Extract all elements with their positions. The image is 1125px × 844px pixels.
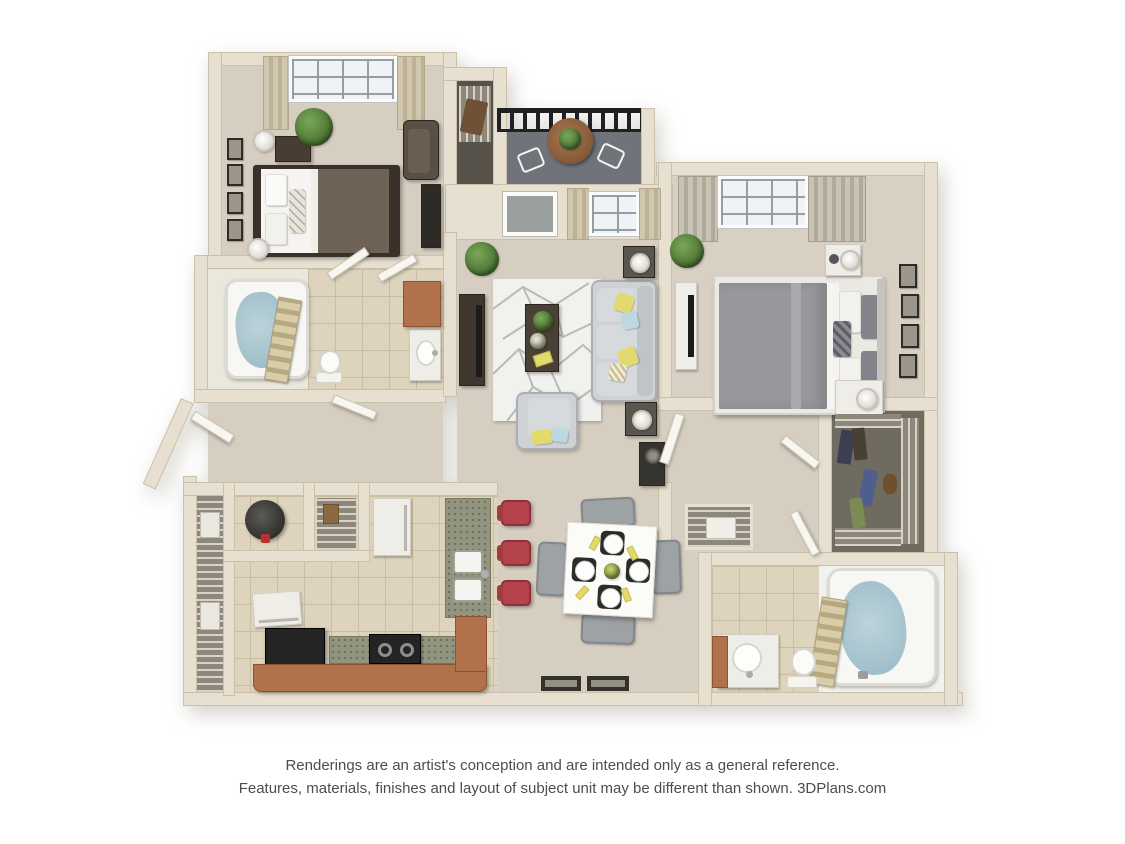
bed-blanket [317,169,389,253]
wall [183,692,963,706]
bar-stool [501,540,531,566]
faucet [432,350,438,356]
page: { "page": { "disclaimer_line1": "Renderi… [0,0,1125,844]
bedroom-2-window [718,176,808,228]
closet-shelf [835,528,901,546]
bedroom-2-curtain-left [678,176,718,242]
kitchen-sink [453,550,483,574]
breakfast-bar-counter [253,664,487,692]
sofa-pillow-patterned [608,363,628,383]
disclaimer-line-2: Features, materials, finishes and layout… [0,777,1125,800]
wall [944,552,958,706]
toilet-tank [787,676,817,688]
wall [223,482,235,696]
coffee-table [525,304,559,372]
bedroom-2-curtain-right [808,176,866,242]
bedroom-1-floor-lamp [247,238,269,260]
bedroom-2-picture-frame [901,294,919,318]
tv [476,305,482,377]
linen-closet-shelf [685,504,753,550]
side-table-lamp [630,253,650,273]
floor-plan [183,42,979,710]
wall [183,476,197,706]
bedroom-1-armchair [403,120,439,180]
laundry-basket [200,512,220,538]
living-room-curtain-left [567,188,589,240]
wall [698,552,712,706]
entry-floor [208,403,443,482]
bedroom-1-table-lamp [253,130,275,152]
bedroom-1-curtain-left [263,56,289,130]
living-room-window [589,192,639,236]
coffee-table-plant [530,333,546,349]
pantry-boxes [323,504,339,524]
bedroom-2-nightstand [825,244,861,276]
black-refrigerator [265,628,325,666]
linen-basket [706,517,736,539]
wall [656,162,938,176]
bathtub-water [835,577,912,678]
nightstand-lamp [840,250,860,270]
wall [194,389,446,403]
burner [400,643,414,657]
faucet [746,671,753,678]
bedroom-2-picture-frame [899,264,917,288]
tv-console [459,294,485,386]
closet-shelf [835,414,901,428]
bed-blanket-fold [311,169,318,253]
wall [924,162,938,566]
dining-chair [580,613,635,645]
dishwasher [252,590,302,627]
closet-shelf [901,418,919,544]
bedroom-1-curtain-right [397,56,425,130]
bedroom-2-plant [670,234,704,268]
bedroom-2-dresser [675,282,697,370]
balcony-table-plant [559,128,581,150]
kitchen-sink [453,578,483,602]
magazine [533,351,554,368]
water-heater-valve [261,534,270,543]
refrigerator [373,498,411,556]
bathroom-1-cabinet [403,281,441,327]
sliding-glass-door [503,192,557,236]
sink [732,643,762,673]
bed-pillow [265,174,287,206]
sofa-pillow-blue [619,310,639,330]
wall [303,482,315,556]
bed-comforter-fold [791,283,801,409]
bedroom-1-window [289,56,397,102]
bed-pillow [265,213,287,245]
bedroom-1-picture-frame [227,164,243,186]
dining-table [563,522,658,619]
bed-comforter [719,283,827,409]
laundry-basket [200,602,220,630]
wall [194,255,208,403]
bathroom-1-vanity [409,329,441,381]
bed-pillow-accent [833,321,851,357]
bathtub-faucet [858,671,868,679]
wall [698,552,958,566]
armchair-seat [408,129,430,173]
sofa [591,280,657,402]
table-centerpiece [604,563,621,580]
napkin [620,587,632,603]
wall [358,482,370,556]
dishwasher-handle [259,618,299,624]
hvac-unit [639,442,665,486]
disclaimer: Renderings are an artist's conception an… [0,754,1125,800]
doormat [541,676,581,691]
bar-stool [501,500,531,526]
kitchen-faucet [481,570,489,578]
place-setting [571,557,596,582]
living-room-plant [465,242,499,276]
wall [208,52,222,269]
nightstand-vase [829,254,839,264]
disclaimer-line-1: Renderings are an artist's conception an… [0,754,1125,777]
sofa-back [637,286,653,396]
fridge-handle [404,505,407,551]
cooktop [369,634,421,664]
nightstand-lamp [856,388,878,410]
wall [818,397,832,566]
bar-stool [501,580,531,606]
bedroom-1-picture-frame [227,138,243,160]
living-room-curtain-right [639,188,661,240]
armchair-pillow-blue [551,427,569,443]
armchair-pillow-yellow [531,429,552,445]
bedroom-2-picture-frame [899,354,917,378]
toilet [319,350,341,374]
bedroom-1-picture-frame [227,192,243,214]
toilet [791,648,816,676]
place-setting [600,530,625,555]
doormat [587,676,629,691]
side-table-lamp [632,410,652,430]
bedroom-1-picture-frame [227,219,243,241]
closet-bag [883,474,897,494]
place-setting [597,584,622,609]
side-table [625,402,657,436]
bedroom-2-nightstand [835,380,883,416]
living-armchair [516,392,578,450]
place-setting [625,558,650,583]
bedroom-1-bed [253,165,400,257]
bedroom-2-picture-frame [901,324,919,348]
bedroom-1-plant [295,108,333,146]
wall [443,232,457,397]
bed-accent-pillow [289,189,305,233]
breakfast-bar-counter [455,616,487,672]
side-table [623,246,655,278]
napkin [575,585,590,600]
burner [378,643,392,657]
bathroom-2-cabinet [712,636,728,688]
bedroom-1-media-console [421,184,441,248]
wall [223,550,370,562]
coffee-table-plant [533,311,553,331]
tv [688,295,694,357]
